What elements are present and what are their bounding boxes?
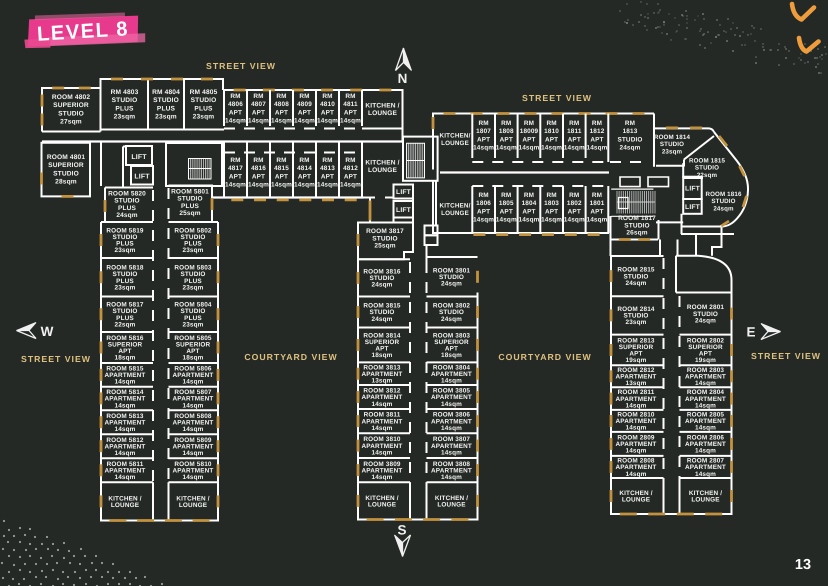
svg-text:COURTYARD VIEW: COURTYARD VIEW: [244, 352, 337, 362]
svg-text:COURTYARD VIEW: COURTYARD VIEW: [498, 352, 591, 362]
svg-text:KITCHEN /LOUNGE: KITCHEN /LOUNGE: [435, 495, 468, 509]
svg-text:STREET VIEW: STREET VIEW: [751, 351, 821, 361]
svg-text:KITCHEN/LOUNGE: KITCHEN/LOUNGE: [440, 203, 471, 217]
svg-text:13: 13: [795, 557, 811, 573]
svg-text:W: W: [41, 324, 54, 339]
svg-text:E: E: [746, 325, 755, 340]
svg-text:STREET VIEW: STREET VIEW: [21, 354, 91, 364]
svg-text:LIFT: LIFT: [685, 185, 701, 192]
svg-text:KITCHEN /LOUNGE: KITCHEN /LOUNGE: [365, 103, 399, 118]
svg-text:STREET VIEW: STREET VIEW: [522, 93, 592, 103]
svg-text:KITCHEN /LOUNGE: KITCHEN /LOUNGE: [176, 495, 209, 509]
svg-text:KITCHEN /LOUNGE: KITCHEN /LOUNGE: [365, 160, 399, 175]
svg-text:STREET VIEW: STREET VIEW: [206, 61, 276, 71]
svg-text:S: S: [397, 523, 406, 538]
svg-text:KITCHEN /LOUNGE: KITCHEN /LOUNGE: [108, 495, 141, 509]
svg-text:KITCHEN/LOUNGE: KITCHEN/LOUNGE: [440, 133, 471, 147]
svg-text:N: N: [398, 71, 408, 86]
svg-text:KITCHEN /LOUNGE: KITCHEN /LOUNGE: [689, 490, 722, 504]
svg-text:LIFT: LIFT: [685, 204, 701, 211]
svg-text:LIFT: LIFT: [396, 189, 412, 196]
svg-text:LIFT: LIFT: [134, 173, 150, 180]
svg-text:LIFT: LIFT: [131, 154, 147, 161]
svg-text:KITCHEN /LOUNGE: KITCHEN /LOUNGE: [365, 495, 398, 509]
svg-text:LIFT: LIFT: [396, 207, 412, 214]
svg-text:KITCHEN /LOUNGE: KITCHEN /LOUNGE: [619, 490, 652, 504]
